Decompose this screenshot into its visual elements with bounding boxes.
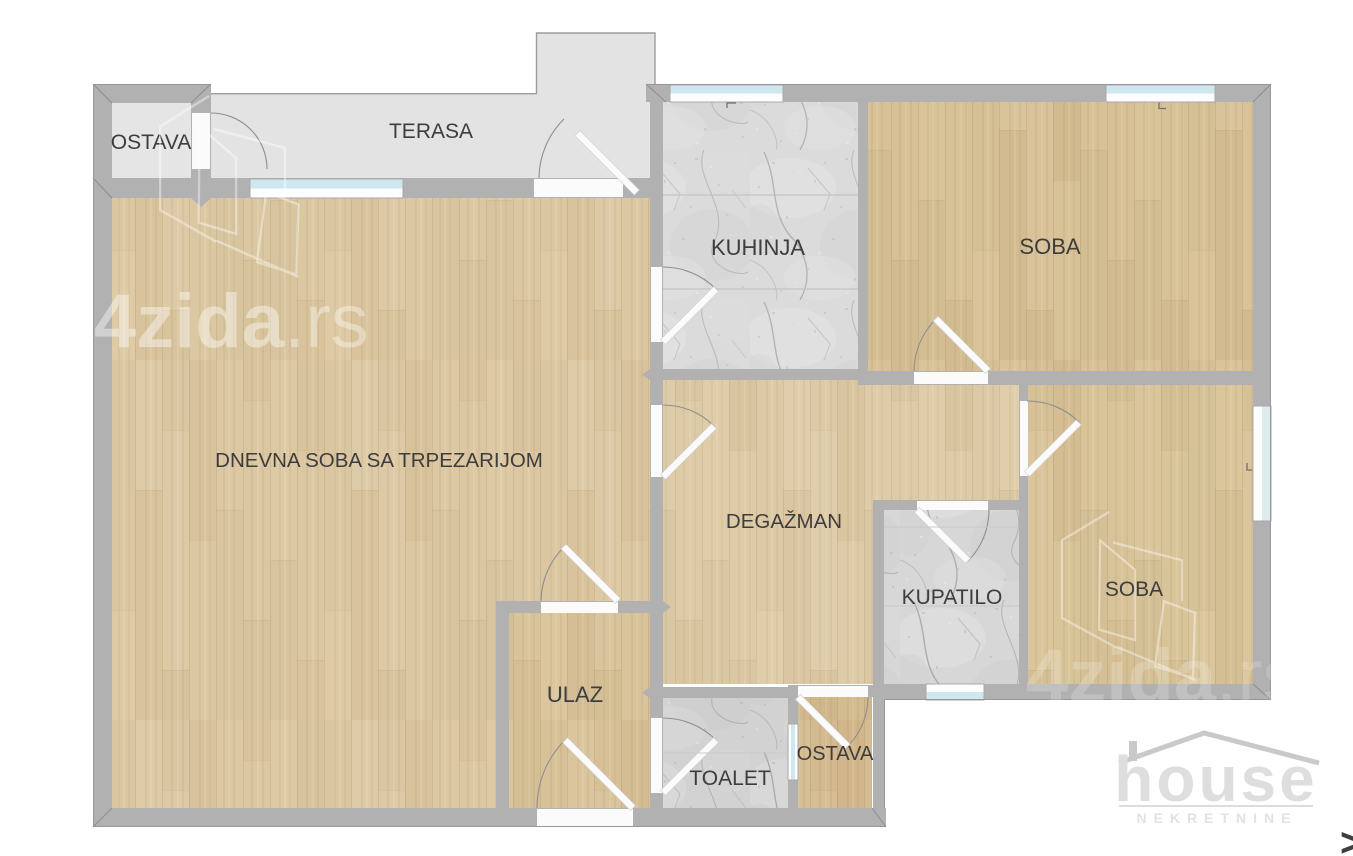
svg-text:OSTAVA: OSTAVA xyxy=(111,131,192,154)
svg-text:TOALET: TOALET xyxy=(689,767,770,790)
svg-text:TERASA: TERASA xyxy=(389,120,473,143)
svg-text:KUHINJA: KUHINJA xyxy=(711,235,805,260)
svg-text:NEKRETNINE: NEKRETNINE xyxy=(1136,810,1297,826)
svg-text:ULAZ: ULAZ xyxy=(547,682,603,707)
svg-text:SOBA: SOBA xyxy=(1019,234,1080,259)
svg-text:KUPATILO: KUPATILO xyxy=(902,586,1003,609)
svg-text:4zida.rs: 4zida.rs xyxy=(1026,634,1301,719)
svg-text:>: > xyxy=(1340,821,1353,856)
svg-text:house: house xyxy=(1114,743,1317,815)
svg-text:4zida.rs: 4zida.rs xyxy=(94,279,369,364)
svg-text:OSTAVA: OSTAVA xyxy=(797,743,874,765)
svg-text:DEGAŽMAN: DEGAŽMAN xyxy=(726,510,842,533)
svg-text:DNEVNA SOBA SA TRPEZARIJOM: DNEVNA SOBA SA TRPEZARIJOM xyxy=(215,449,543,472)
